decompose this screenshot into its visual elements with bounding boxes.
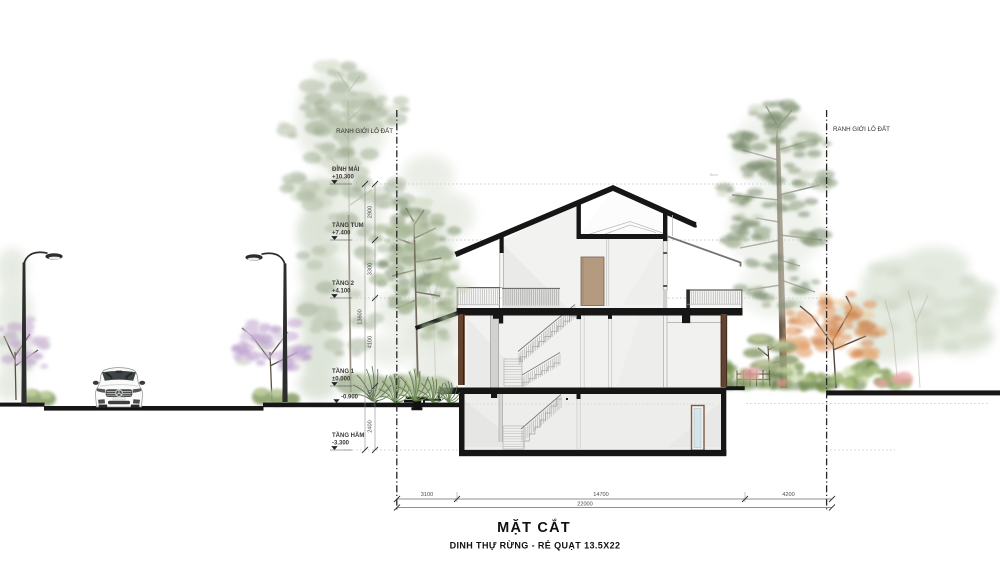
svg-text:-0.900: -0.900 — [341, 395, 359, 401]
svg-text:Bmw: Bmw — [710, 173, 718, 177]
svg-text:3300: 3300 — [368, 263, 374, 275]
svg-text:-3.300: -3.300 — [332, 440, 350, 446]
svg-text:RANH GIỚI LÔ ĐẤT: RANH GIỚI LÔ ĐẤT — [833, 126, 890, 133]
svg-text:+7.400: +7.400 — [332, 230, 351, 236]
svg-text:22000: 22000 — [577, 502, 593, 508]
svg-text:900: 900 — [368, 390, 374, 399]
svg-text:±0.000: ±0.000 — [332, 376, 351, 382]
svg-text:TẦNG TUM: TẦNG TUM — [332, 222, 364, 229]
svg-text:DINH THỰ RỪNG - RẺ QUẠT 13.5X2: DINH THỰ RỪNG - RẺ QUẠT 13.5X22 — [450, 540, 621, 551]
svg-text:2400: 2400 — [368, 420, 374, 432]
svg-text:4100: 4100 — [368, 336, 374, 348]
svg-text:TẦNG 1: TẦNG 1 — [332, 368, 355, 375]
svg-text:TẦNG 2: TẦNG 2 — [332, 280, 355, 287]
svg-text:TẦNG HẦM: TẦNG HẦM — [332, 432, 364, 439]
svg-text:3100: 3100 — [421, 492, 433, 498]
svg-text:4200: 4200 — [782, 492, 794, 498]
svg-text:ĐỈNH MÁI: ĐỈNH MÁI — [332, 166, 360, 173]
svg-text:+10.300: +10.300 — [332, 174, 355, 180]
svg-text:RANH GIỚI LÔ ĐẤT: RANH GIỚI LÔ ĐẤT — [336, 128, 393, 135]
svg-text:13600: 13600 — [358, 309, 364, 325]
svg-text:2900: 2900 — [368, 206, 374, 218]
svg-text:+4.100: +4.100 — [332, 288, 351, 294]
svg-text:MẶT CẮT: MẶT CẮT — [497, 518, 571, 536]
svg-text:14700: 14700 — [593, 492, 609, 498]
